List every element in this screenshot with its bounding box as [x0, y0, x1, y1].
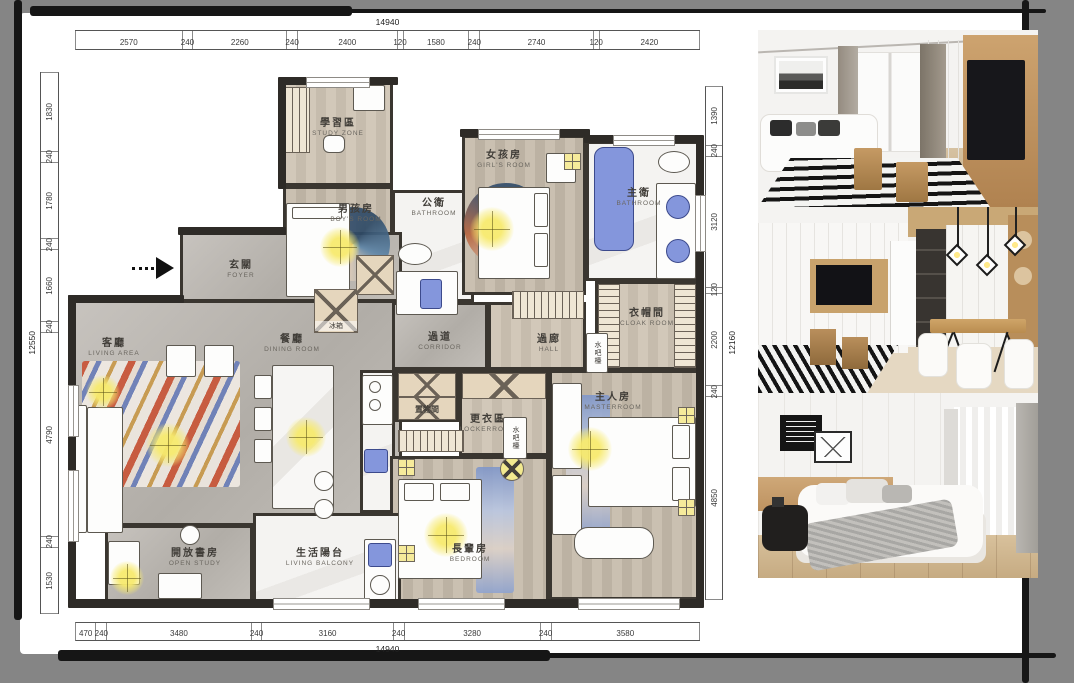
study-shelf — [284, 87, 310, 153]
top-dimension-row: 257024022602402400120158024027401202420 — [75, 31, 700, 50]
storage-cabinet — [398, 397, 456, 420]
pillow — [882, 485, 912, 503]
sofa — [87, 407, 123, 533]
window — [478, 129, 560, 140]
stool — [204, 345, 234, 377]
dimension-segment: 4790 — [41, 333, 58, 537]
closet — [398, 430, 464, 452]
bathtub — [594, 147, 634, 251]
ceiling-light-symbol — [424, 513, 468, 557]
stool — [166, 345, 196, 377]
washbasin — [420, 279, 442, 309]
pillow — [816, 483, 850, 505]
dimension-segment: 240 — [706, 146, 722, 157]
left-dimension-column: 18302401780240166024047902401530 — [41, 72, 59, 614]
pillow — [672, 467, 690, 501]
dimension-segment: 240 — [41, 239, 58, 250]
sketch-art-frame — [814, 431, 852, 463]
dimension-segment: 2200 — [706, 294, 722, 387]
shoe-cabinet — [512, 291, 584, 319]
window — [68, 385, 79, 437]
dimension-segment: 4850 — [706, 397, 722, 600]
pillow — [440, 483, 470, 501]
nightstand — [762, 505, 808, 551]
ceiling-light-symbol — [110, 561, 144, 595]
dimension-segment: 1660 — [41, 250, 58, 321]
dimension-segment: 240 — [469, 31, 480, 49]
kitchen-sink — [364, 449, 388, 473]
wall — [68, 295, 184, 303]
window — [418, 598, 505, 610]
fridge-label: 冰箱 — [315, 321, 357, 331]
round-stool — [180, 525, 200, 545]
dimension-segment: 3280 — [405, 623, 541, 640]
nightstand-item — [772, 497, 784, 507]
cushion — [770, 120, 792, 136]
dimension-segment: 240 — [541, 623, 552, 640]
washing-machine — [370, 575, 390, 595]
ceiling-fan-symbol — [500, 457, 524, 481]
water-bar-label: 水吧檯 — [510, 426, 520, 450]
wall-art — [774, 56, 828, 94]
curtain-right — [1016, 403, 1038, 553]
round-chair — [314, 499, 334, 519]
white-chair — [1004, 339, 1034, 389]
wall — [178, 227, 286, 235]
dimension-segment: 2420 — [600, 31, 700, 49]
frame-stroke-top-thin — [340, 9, 1046, 13]
cabinet — [158, 573, 202, 599]
wall-light-symbol — [678, 499, 695, 516]
study-desk — [353, 85, 385, 111]
entry-triangle-icon — [156, 257, 174, 279]
dimension-segment: 3480 — [107, 623, 251, 640]
pillow — [534, 233, 548, 267]
dimension-segment: 3160 — [262, 623, 393, 640]
foyer-cabinet — [356, 255, 394, 295]
wall-light-symbol — [564, 153, 581, 170]
frame-stroke-left — [14, 0, 22, 620]
ceiling-light-symbol — [470, 207, 514, 251]
master-wardrobe — [552, 475, 582, 535]
dimension-segment: 240 — [252, 623, 263, 640]
art-text-lines — [786, 421, 816, 445]
dimension-segment: 240 — [41, 322, 58, 333]
curtain-right — [920, 44, 946, 164]
dimension-segment: 2570 — [76, 31, 183, 49]
pillow — [672, 425, 690, 459]
tv-screen — [816, 265, 872, 305]
dimension-segment: 3580 — [552, 623, 700, 640]
ceiling-light-symbol — [86, 375, 120, 409]
bedroom-photo — [758, 393, 1038, 578]
window — [68, 470, 79, 542]
wall-light-symbol — [398, 459, 415, 476]
window — [306, 77, 370, 88]
pendant-cord — [957, 207, 959, 249]
chaise-lounge — [574, 527, 654, 559]
dimension-segment: 1580 — [404, 31, 470, 49]
dining-area-photo — [758, 207, 1038, 393]
round-basin — [666, 195, 690, 219]
burner — [369, 381, 381, 393]
bottom-total-dimension: 14940 — [75, 641, 700, 657]
dining-table — [930, 319, 1026, 333]
wall-light-symbol — [678, 407, 695, 424]
right-dimension-column: 1390240312012022002404850 — [705, 86, 723, 600]
dimension-segment: 240 — [394, 623, 405, 640]
pillow — [292, 207, 342, 219]
water-bar-label: 水吧檯 — [592, 341, 602, 365]
dimension-segment: 3120 — [706, 157, 722, 288]
dimension-segment: 2400 — [298, 31, 398, 49]
wall — [278, 77, 286, 189]
dimension-segment: 240 — [287, 31, 298, 49]
window — [613, 135, 675, 146]
dimension-segment: 1830 — [41, 73, 58, 152]
round-chair — [314, 471, 334, 491]
white-chair — [956, 343, 992, 389]
dimension-segment: 240 — [183, 31, 194, 49]
fridge-box: 冰箱 — [314, 289, 358, 333]
dimension-segment: 1530 — [41, 548, 58, 614]
balcony-sink — [368, 543, 392, 567]
ceiling-light-symbol — [286, 417, 326, 457]
tv-screen — [967, 60, 1025, 160]
dimension-segment: 2260 — [193, 31, 287, 49]
living-room-photo — [758, 30, 1038, 207]
burner — [369, 399, 381, 411]
art-image — [779, 61, 823, 89]
white-chair — [918, 333, 948, 377]
dining-chair — [254, 375, 272, 399]
dimension-segment: 240 — [41, 537, 58, 548]
entry-dash-line — [132, 267, 154, 270]
toilet — [658, 151, 690, 173]
toilet — [398, 243, 432, 265]
bottom-dimension-row: 4702403480240316024032802403580 — [75, 622, 700, 641]
pillow — [534, 193, 548, 227]
wood-stool — [810, 329, 836, 365]
water-bar-box: 水吧檯 — [503, 417, 527, 459]
wall-light-symbol — [398, 545, 415, 562]
dining-chair — [254, 407, 272, 431]
wood-stool — [896, 162, 928, 202]
wardrobe — [674, 284, 696, 368]
ceiling-light-symbol — [320, 227, 360, 267]
dimension-segment: 1390 — [706, 87, 722, 146]
chair — [323, 135, 345, 153]
pendant-cord — [987, 207, 989, 259]
dimension-segment: 240 — [96, 623, 107, 640]
dimension-segment: 1780 — [41, 163, 58, 239]
right-total-dimension: 12160 — [723, 86, 741, 600]
entry-arrow — [132, 257, 174, 279]
dining-chair — [254, 439, 272, 463]
wood-stool — [842, 337, 868, 369]
dimension-segment: 240 — [706, 386, 722, 397]
art-sketch — [820, 437, 846, 457]
window — [578, 598, 680, 610]
dimension-segment: 240 — [41, 152, 58, 163]
floor-plan: 冰箱 — [68, 75, 704, 612]
wood-slice-decor — [1014, 267, 1032, 285]
cushion — [796, 122, 816, 136]
water-bar-box: 水吧檯 — [586, 333, 608, 373]
ceiling-light-symbol — [568, 427, 612, 471]
window — [273, 598, 370, 610]
top-total-dimension: 14940 — [75, 14, 700, 31]
left-total-dimension: 12550 — [24, 72, 41, 614]
locker-cabinet — [462, 373, 546, 399]
storage-cabinet — [398, 373, 456, 397]
cushion — [818, 120, 840, 136]
round-basin — [666, 239, 690, 263]
pillow — [404, 483, 434, 501]
ceiling-light-symbol — [146, 423, 190, 467]
wood-stool — [854, 148, 882, 190]
window — [695, 195, 706, 252]
dimension-segment: 2740 — [480, 31, 594, 49]
dimension-segment: 470 — [76, 623, 96, 640]
wall — [68, 295, 76, 607]
